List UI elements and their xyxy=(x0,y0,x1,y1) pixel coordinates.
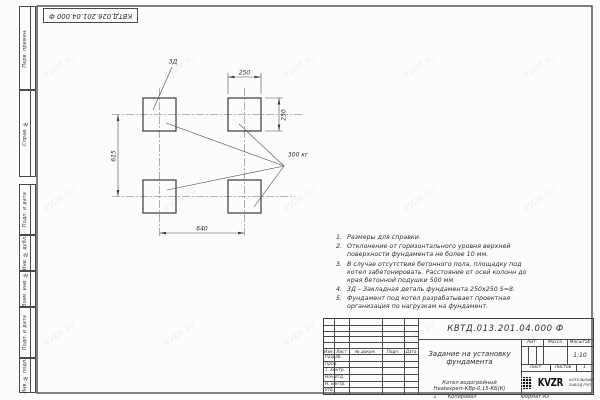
dimension-left: 615 xyxy=(111,150,118,161)
note-number: 1. xyxy=(336,234,347,242)
note-text: Фундамент под котел разрабатывает проект… xyxy=(347,295,541,311)
margin-box-inv-podl: Инв. № подл. xyxy=(19,358,36,393)
sign-row-tkontr: Т. контр. xyxy=(325,367,349,374)
footer-copied: Копировал xyxy=(448,394,477,400)
note-number: 5. xyxy=(336,295,347,311)
logo-text: KVZR xyxy=(538,377,563,389)
note-item: 4.3Д – Закладная деталь фундамента 250х2… xyxy=(336,286,541,294)
dimension-top: 250 xyxy=(239,69,250,76)
document-designation: КВТД.013.201.04.000 Ф xyxy=(418,319,593,339)
footer-zone: 1 xyxy=(433,394,436,400)
document-title: Задание на установку фундамента xyxy=(418,339,521,377)
sign-row-nachotd: Нач.отд. xyxy=(325,374,349,381)
product-name-line2: Heatexpert-КВр-0,15-КБ(К) xyxy=(434,386,506,392)
margin-label-text: Справ. № xyxy=(23,121,28,146)
company-logo: KVZR КОТЕЛЬНЫЙ ЗАВОД РЭП xyxy=(521,371,593,394)
lit-header: Лит. xyxy=(521,339,543,346)
margin-box-inv-dubl: Инв. № дубл. xyxy=(19,235,36,271)
product-name: Котел водогрейный Heatexpert-КВр-0,15-КБ… xyxy=(418,377,521,394)
note-item: 3.В случае отсутствия бетонного пола, пл… xyxy=(336,261,541,286)
mass-header: Масса xyxy=(543,339,567,346)
margin-box-perv-primen: Перв. примен. xyxy=(19,6,36,90)
notes-list: 1.Размеры для справки. 2.Отклонение от г… xyxy=(336,234,541,313)
title-block: Изм. Лист № докум. Подп. Дата Разраб. Пр… xyxy=(323,318,594,395)
margin-label-text: Перв. примен. xyxy=(23,29,28,68)
mass-label: 300 кг xyxy=(288,152,308,159)
note-text: 3Д – Закладная деталь фундамента 250х250… xyxy=(347,286,541,294)
note-number: 2. xyxy=(336,243,347,259)
note-item: 2.Отклонение от горизонтального уровня в… xyxy=(336,243,541,259)
scale-header: Масштаб xyxy=(567,339,593,346)
note-text: Размеры для справки. xyxy=(347,234,541,242)
margin-label-text: Подп. и дата xyxy=(23,315,28,350)
corner-designation-stamp: КВТД.026.201.04.000 Ф xyxy=(43,8,138,23)
corner-designation-text: КВТД.026.201.04.000 Ф xyxy=(49,12,132,20)
logo-subtitle-line1: КОТЕЛЬНЫЙ xyxy=(569,378,593,383)
margin-box-label: Перв. примен. xyxy=(20,7,31,89)
text-layer: Перв. примен. Справ. № Подп. и дата Инв.… xyxy=(0,0,600,400)
note-text: В случае отсутствия бетонного пола, площ… xyxy=(347,261,541,286)
scale-value: 1:10 xyxy=(567,346,593,364)
sheet-label: Лист xyxy=(521,364,550,371)
margin-label-text: Взам. инв. № xyxy=(23,272,28,307)
sign-row-utv: Утв. xyxy=(325,387,349,394)
footer-format: Формат А3 xyxy=(521,394,549,400)
margin-box-label: Взам. инв. № xyxy=(20,272,31,306)
sheets-label: Листов xyxy=(550,364,576,371)
margin-box-label: Справ. № xyxy=(20,91,31,176)
note-item: 5.Фундамент под котел разрабатывает прое… xyxy=(336,295,541,311)
dimension-right: 250 xyxy=(281,109,288,120)
margin-label-text: Инв. № дубл. xyxy=(23,235,28,270)
col-header-dokum: № докум. xyxy=(349,348,382,354)
note-text: Отклонение от горизонтального уровня вер… xyxy=(347,243,541,259)
margin-box-label: Инв. № дубл. xyxy=(20,236,31,270)
margin-box-label: Подп. и дата xyxy=(20,308,31,357)
document-title-line1: Задание на установку xyxy=(428,350,510,358)
dimension-bottom: 640 xyxy=(196,226,207,233)
document-title-line2: фундамента xyxy=(446,358,492,366)
col-header-podp: Подп. xyxy=(382,348,404,354)
margin-box-label: Подп. и дата xyxy=(20,185,31,234)
col-header-data: Дата xyxy=(404,348,418,354)
logo-subtitle-line2: ЗАВОД РЭП xyxy=(569,383,593,388)
logo-subtitle: КОТЕЛЬНЫЙ ЗАВОД РЭП xyxy=(569,378,593,387)
note-number: 3. xyxy=(336,261,347,286)
margin-box-podp-data-1: Подп. и дата xyxy=(19,184,36,235)
note-item: 1.Размеры для справки. xyxy=(336,234,541,242)
margin-box-podp-data-2: Подп. и дата xyxy=(19,307,36,358)
margin-box-label: Инв. № подл. xyxy=(20,359,31,392)
margin-label-text: Инв. № подл. xyxy=(23,358,28,394)
embed-part-label: 3Д xyxy=(169,59,178,66)
sign-row-razrab: Разраб. xyxy=(325,354,349,361)
margin-box-vzam-inv: Взам. инв. № xyxy=(19,271,36,307)
sheets-value: 1 xyxy=(576,364,593,371)
margin-box-sprav-no: Справ. № xyxy=(19,90,36,177)
kvzr-logo-icon xyxy=(521,377,532,389)
drawing-sheet: KVZR.RU KVZR.RU KVZR.RU KVZR.RU KVZR.RU … xyxy=(0,0,600,400)
margin-label-text: Подп. и дата xyxy=(23,192,28,227)
note-number: 4. xyxy=(336,286,347,294)
